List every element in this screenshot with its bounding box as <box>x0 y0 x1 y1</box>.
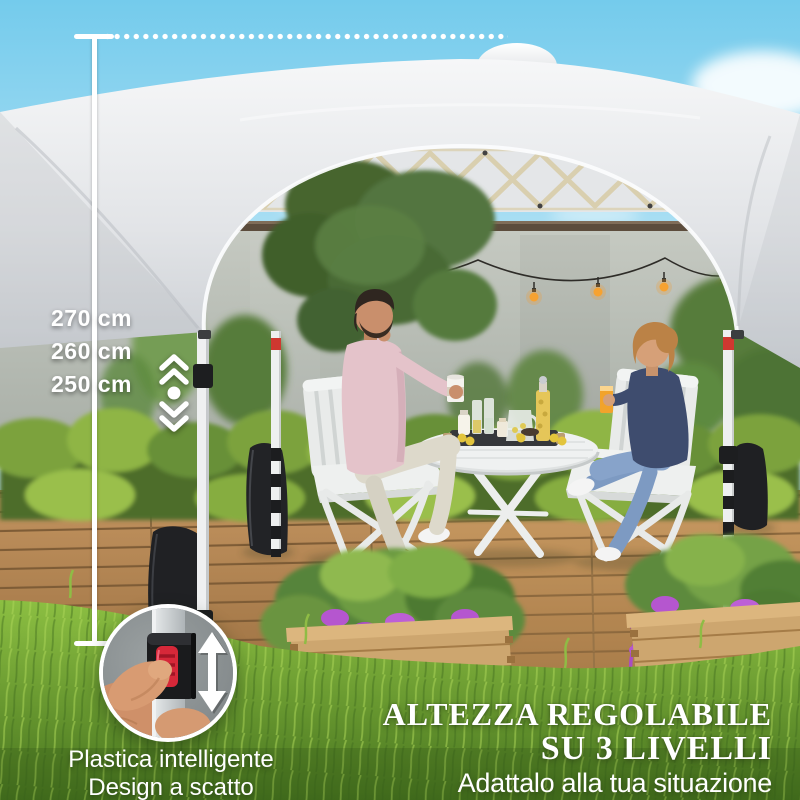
inset-caption-line1: Plastica intelligente <box>28 746 314 774</box>
chevron-down-icon <box>162 418 186 429</box>
inset-caption-line2: Design a scatto <box>28 774 314 800</box>
height-label: 250 cm <box>51 368 132 401</box>
promo-title-line1: ALTEZZA REGOLABILE <box>383 697 772 731</box>
chevron-down-icon <box>162 404 186 415</box>
product-photo-scene: 270 cm 260 cm 250 cm <box>0 0 800 800</box>
promo-text-block: ALTEZZA REGOLABILE SU 3 LIVELLI Adattalo… <box>383 697 772 798</box>
chevron-up-icon <box>162 371 186 382</box>
height-label: 270 cm <box>51 302 132 335</box>
height-labels: 270 cm 260 cm 250 cm <box>51 302 132 401</box>
inset-caption: Plastica intelligente Design a scatto <box>28 746 314 800</box>
button-closeup <box>103 608 233 738</box>
height-adjust-indicator-icon <box>157 352 191 434</box>
chevron-up-icon <box>162 357 186 368</box>
measure-line-cap-top <box>74 34 114 39</box>
dotted-guide-line <box>104 33 508 40</box>
zoom-inset-circle <box>99 604 237 742</box>
height-label: 260 cm <box>51 335 132 368</box>
promo-title-line2: SU 3 LIVELLI <box>383 731 772 766</box>
promo-subtitle: Adattalo alla tua situazione <box>383 768 772 798</box>
dot-icon <box>168 387 181 400</box>
